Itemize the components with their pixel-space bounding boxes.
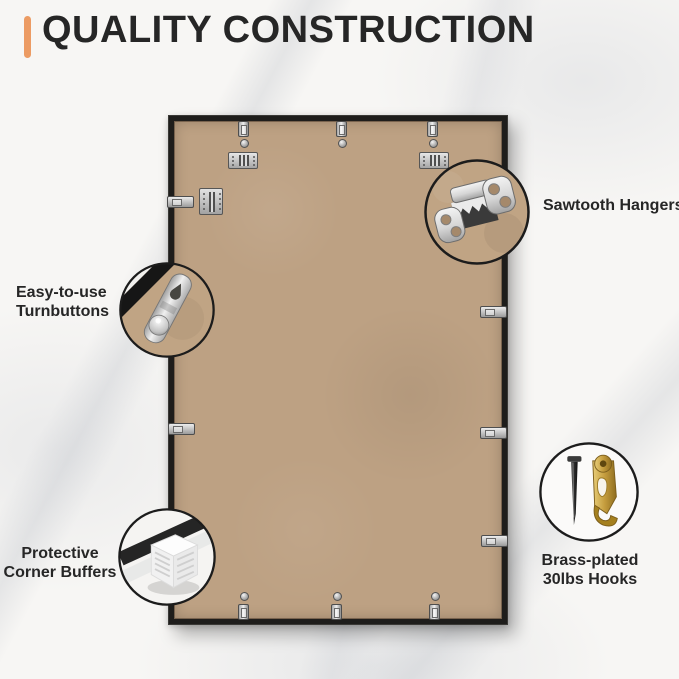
sawtooth-hanger-icon <box>424 159 530 265</box>
turnbutton-tab <box>238 121 249 137</box>
hooks-label-line2: 30lbs Hooks <box>532 570 648 589</box>
corner-buffer-icon <box>118 508 216 606</box>
turnbutton-screw <box>431 592 440 601</box>
hooks-label: Brass-plated 30lbs Hooks <box>532 551 648 589</box>
turnbuttons-label: Easy-to-use Turnbuttons <box>16 283 109 321</box>
turnbutton-tab <box>168 423 195 435</box>
page-title: QUALITY CONSTRUCTION <box>42 9 535 52</box>
turnbutton-tab <box>336 121 347 137</box>
brass-hook-callout <box>539 442 639 542</box>
turnbutton-screw <box>240 139 249 148</box>
buffers-label-line2: Corner Buffers <box>2 563 118 582</box>
buffers-label: Protective Corner Buffers <box>2 544 118 582</box>
sawtooth-hanger <box>228 152 258 169</box>
turnbutton-tab <box>167 196 194 208</box>
turnbutton-tab <box>480 306 507 318</box>
turnbutton-tab <box>481 535 508 547</box>
turnbutton-screw <box>429 139 438 148</box>
sawtooth-label: Sawtooth Hangers <box>543 196 679 215</box>
header: QUALITY CONSTRUCTION <box>0 0 679 70</box>
turnbutton-tab <box>480 427 507 439</box>
turnbutton-callout <box>119 262 215 358</box>
turnbutton-tab <box>427 121 438 137</box>
corner-buffer-callout <box>118 508 216 606</box>
turnbutton-tab <box>238 604 249 620</box>
turnbutton-screw <box>333 592 342 601</box>
turnbutton-tab <box>429 604 440 620</box>
sawtooth-callout <box>424 159 530 265</box>
buffers-label-line1: Protective <box>2 544 118 563</box>
product-infographic: QUALITY CONSTRUCTION <box>0 0 679 679</box>
turnbutton-icon <box>119 262 215 358</box>
hooks-label-line1: Brass-plated <box>532 551 648 570</box>
turnbutton-screw <box>338 139 347 148</box>
sawtooth-hanger <box>199 188 223 215</box>
turnbutton-tab <box>331 604 342 620</box>
turnbuttons-label-line1: Easy-to-use <box>16 283 109 302</box>
turnbuttons-label-line2: Turnbuttons <box>16 302 109 321</box>
brass-hook-icon <box>539 442 639 542</box>
accent-bar <box>24 16 31 58</box>
turnbutton-screw <box>240 592 249 601</box>
sawtooth-label-text: Sawtooth Hangers <box>543 197 679 214</box>
